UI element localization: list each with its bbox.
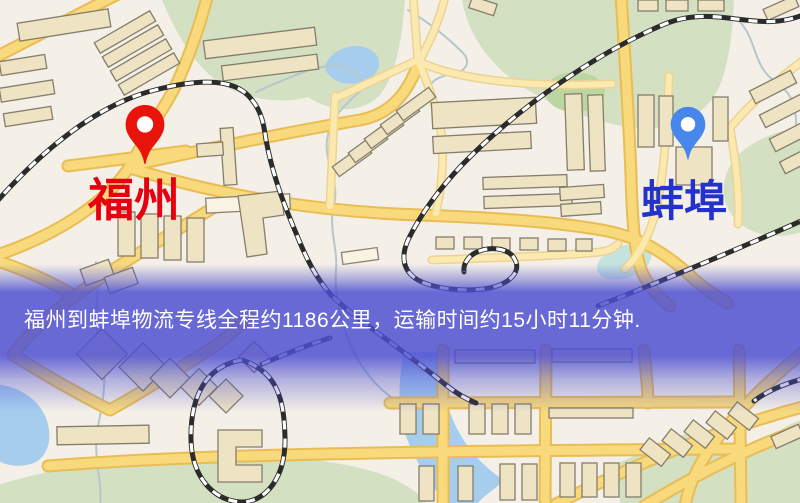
destination-pin-icon — [668, 106, 708, 164]
map-canvas: 福州到蚌埠物流专线全程约1186公里，运输时间约15小时11分钟. 福州 蚌埠 — [0, 0, 800, 503]
pond-bottom-left — [0, 384, 49, 466]
origin-pin-icon — [124, 104, 166, 169]
destination-label: 蚌埠 — [641, 181, 727, 224]
origin-label: 福州 — [88, 178, 180, 224]
map-background — [0, 0, 800, 503]
